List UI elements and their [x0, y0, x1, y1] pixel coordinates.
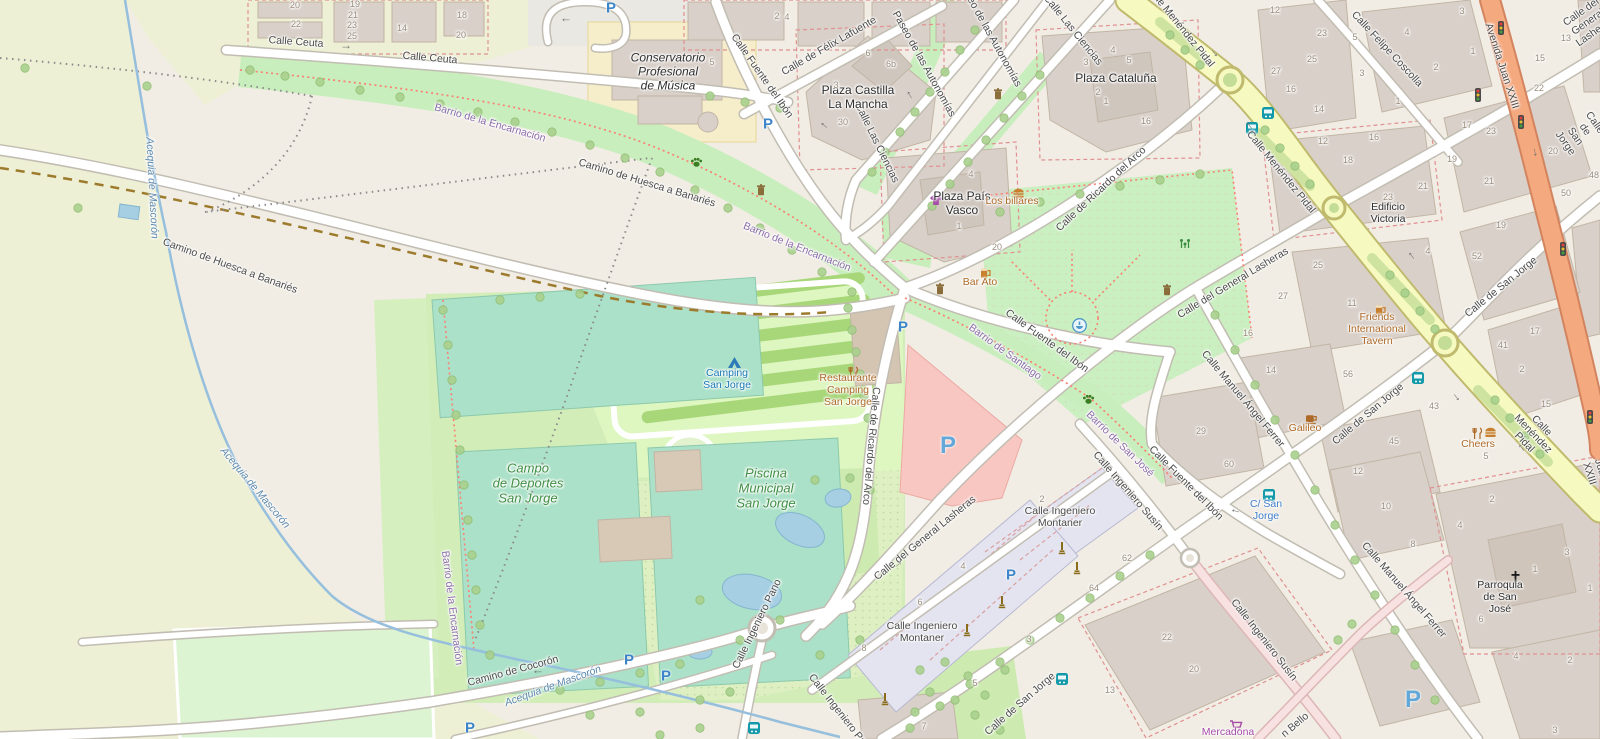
map-graphics	[0, 0, 1600, 739]
map-canvas[interactable]: PPPPPPPPP→→→→→→→→→→→→→→ Calle CeutaCalle…	[0, 0, 1600, 739]
